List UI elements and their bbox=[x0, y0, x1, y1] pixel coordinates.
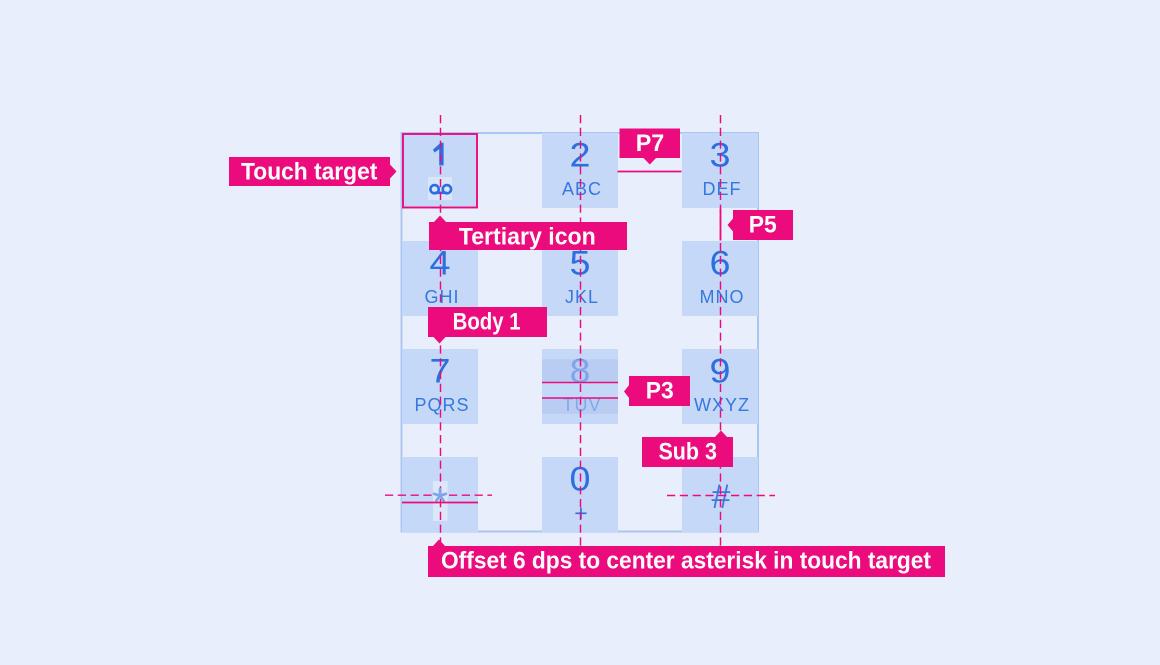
svg-text:Touch target: Touch target bbox=[241, 158, 377, 185]
svg-text:P7: P7 bbox=[636, 130, 665, 157]
svg-text:Sub 3: Sub 3 bbox=[658, 438, 717, 465]
svg-text:MNO: MNO bbox=[700, 287, 745, 307]
svg-text:P5: P5 bbox=[749, 211, 777, 238]
svg-text:GHI: GHI bbox=[424, 287, 459, 307]
svg-text:DEF: DEF bbox=[703, 179, 742, 199]
svg-text:Offset 6 dps to center asteris: Offset 6 dps to center asterisk in touch… bbox=[441, 547, 931, 574]
svg-text:ABC: ABC bbox=[562, 179, 602, 199]
svg-text:PQRS: PQRS bbox=[414, 395, 469, 415]
svg-text:Body 1: Body 1 bbox=[453, 308, 521, 335]
svg-text:JKL: JKL bbox=[565, 287, 599, 307]
svg-text:WXYZ: WXYZ bbox=[694, 395, 750, 415]
svg-text:Tertiary icon: Tertiary icon bbox=[459, 223, 596, 250]
svg-text:#: # bbox=[711, 478, 730, 516]
svg-text:P3: P3 bbox=[646, 377, 674, 404]
